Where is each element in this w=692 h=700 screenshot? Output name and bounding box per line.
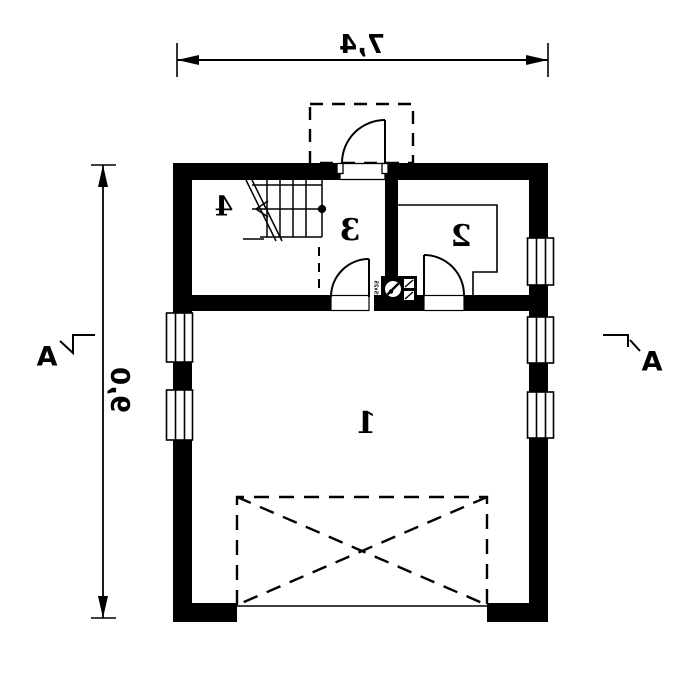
dimension-width-label: 7,4 [339, 32, 385, 58]
door-room3-symbol [331, 259, 369, 311]
outer-walls [173, 163, 548, 622]
wall-room2-room3 [385, 180, 398, 277]
wall-left-lower [173, 440, 192, 622]
window-left-2 [167, 390, 193, 440]
window-right-3 [528, 392, 554, 438]
room-label-2: 2 [451, 222, 472, 252]
arrow-left-icon [177, 55, 199, 65]
wall-left-middle [173, 362, 192, 390]
room-label-3: 3 [340, 216, 361, 246]
garage-door-symbol [237, 497, 487, 606]
wall-right-mid1 [529, 285, 548, 317]
dimension-height-label: 9,0 [106, 367, 132, 413]
room-label-1: 1 [356, 409, 377, 439]
section-marker-right-icon [603, 335, 640, 351]
front-door-symbol [337, 120, 388, 180]
section-marker-left-icon [60, 335, 95, 353]
floor-plan-drawing [0, 0, 692, 700]
wall-hall-right [464, 295, 530, 311]
wall-right-upper [529, 163, 548, 238]
stair-break-line [246, 180, 276, 241]
stove-size-label: 25x25 [373, 280, 378, 297]
staircase-symbol [243, 180, 325, 241]
wall-right-lower [529, 438, 548, 622]
window-right-2 [528, 317, 554, 363]
porch-outline [310, 104, 413, 163]
wall-left-upper [173, 163, 192, 313]
wall-top-left-segment [173, 163, 340, 180]
wall-bottom-right-segment [487, 603, 548, 622]
wall-top-right-segment [385, 163, 548, 180]
door-room2-symbol [424, 255, 464, 311]
wall-right-mid2 [529, 363, 548, 392]
stair-newel-post [319, 206, 326, 213]
window-left-1 [167, 313, 193, 362]
wall-hall-left [192, 295, 331, 311]
room-label-4: 4 [215, 194, 234, 221]
window-right-1 [528, 238, 554, 285]
floor-plan-canvas: 7,4 9,0 A A 1 2 3 4 25x25 [0, 0, 692, 700]
section-label-left: A [37, 344, 58, 371]
arrow-down-icon [98, 596, 108, 618]
stove-symbol [381, 276, 417, 302]
arrow-up-icon [98, 165, 108, 187]
arrow-right-icon [526, 55, 548, 65]
interior-walls [192, 180, 530, 311]
section-label-right: A [642, 349, 663, 376]
wall-bottom-left-segment [173, 603, 237, 622]
